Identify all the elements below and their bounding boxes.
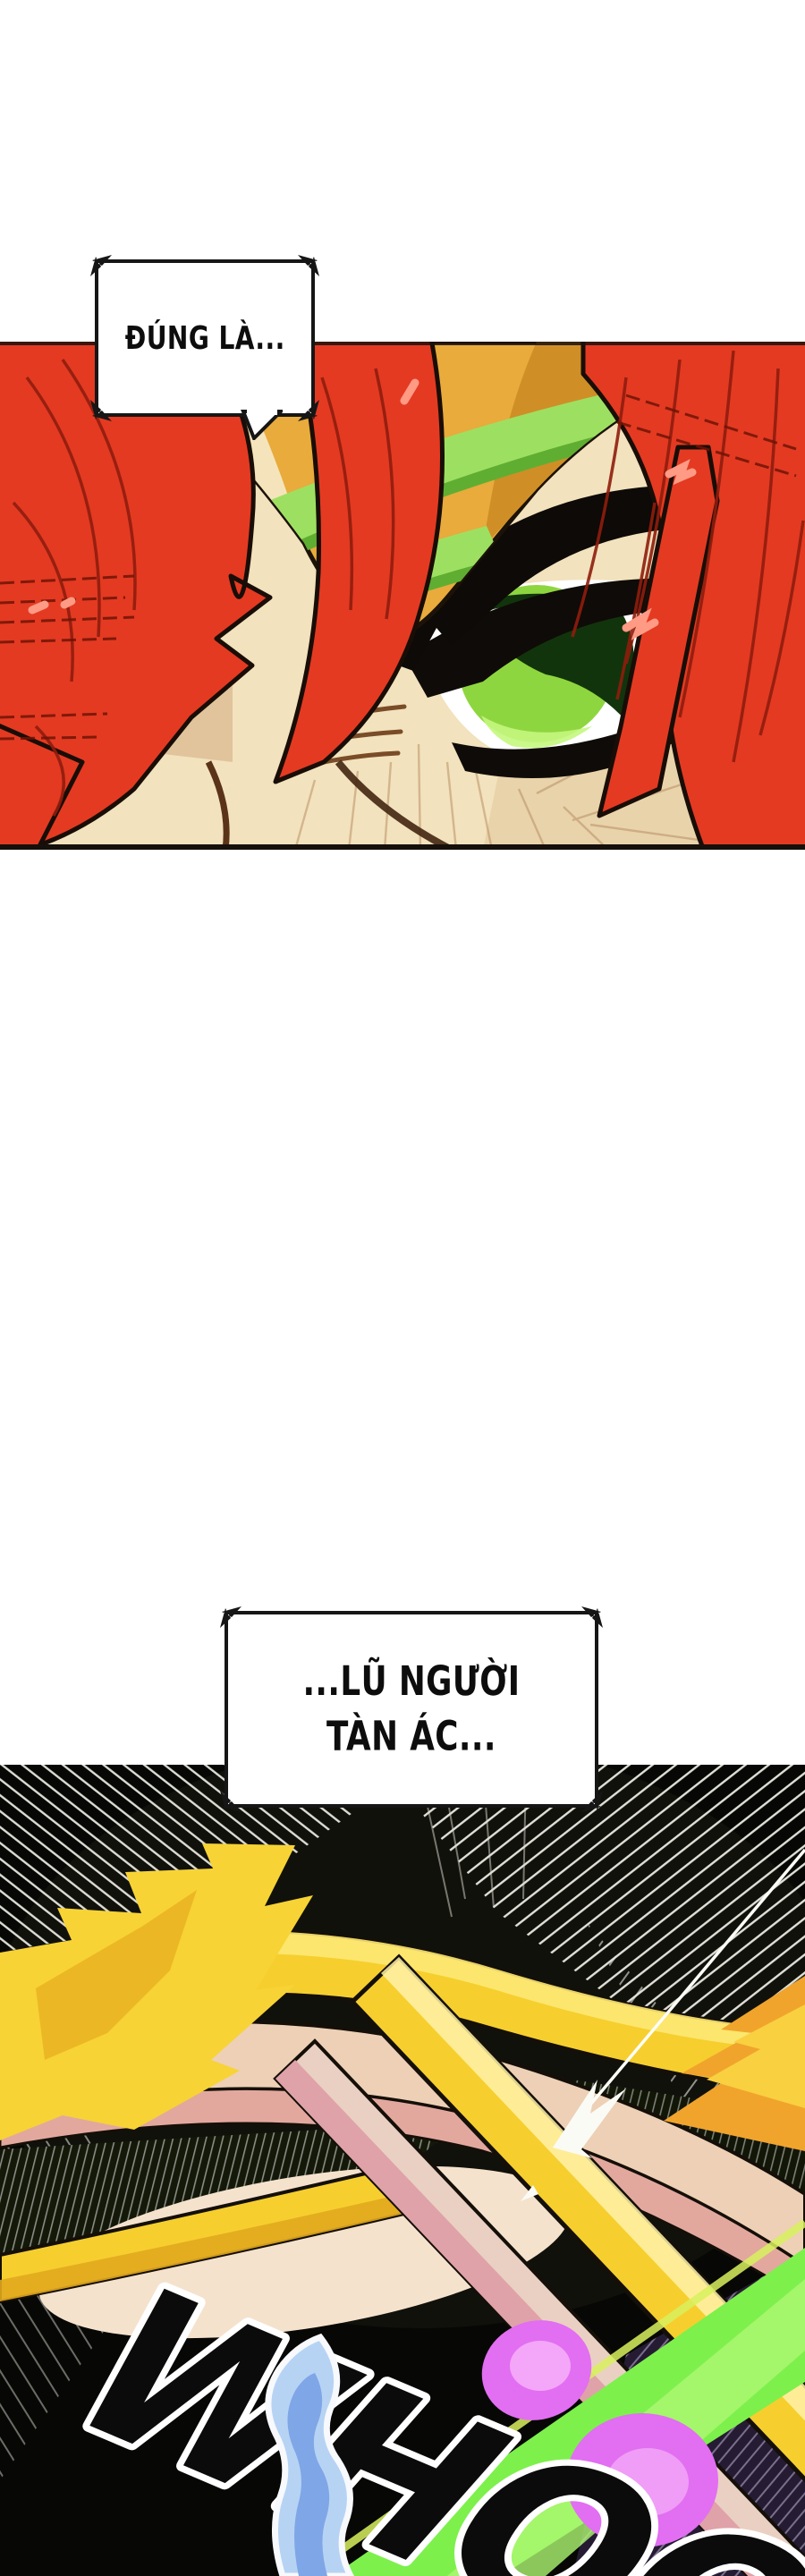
bubble-corner-claw [581, 1791, 605, 1814]
bubble-tail [240, 410, 283, 440]
bubble-corner-claw [298, 253, 321, 276]
panel-face-closeup [0, 342, 805, 850]
bubble-corner-claw [218, 1791, 241, 1814]
bubble-2-line-2: TÀN ÁC... [302, 1709, 520, 1764]
panel-action-whoosh: WHOOSH [0, 1765, 805, 2576]
panel-border [0, 844, 805, 850]
bubble-corner-claw [218, 1605, 241, 1628]
speech-bubble-2: ...LŨ NGƯỜI TÀN ÁC... [225, 1611, 598, 1808]
bubble-1-text: ĐÚNG LÀ... [125, 317, 285, 360]
bubble-2-text: ...LŨ NGƯỜI TÀN ÁC... [302, 1655, 520, 1764]
bubble-corner-claw [581, 1605, 605, 1628]
blue-flame [268, 2337, 351, 2576]
bubble-corner-claw [89, 253, 112, 276]
bubble-corner-claw [89, 400, 112, 423]
bubble-corner-claw [298, 400, 321, 423]
speech-bubble-1: ĐÚNG LÀ... [95, 259, 315, 417]
bubble-2-line-1: ...LŨ NGƯỜI [302, 1655, 520, 1709]
webtoon-page: WHOOSH ĐÚNG LÀ... [0, 0, 805, 2576]
